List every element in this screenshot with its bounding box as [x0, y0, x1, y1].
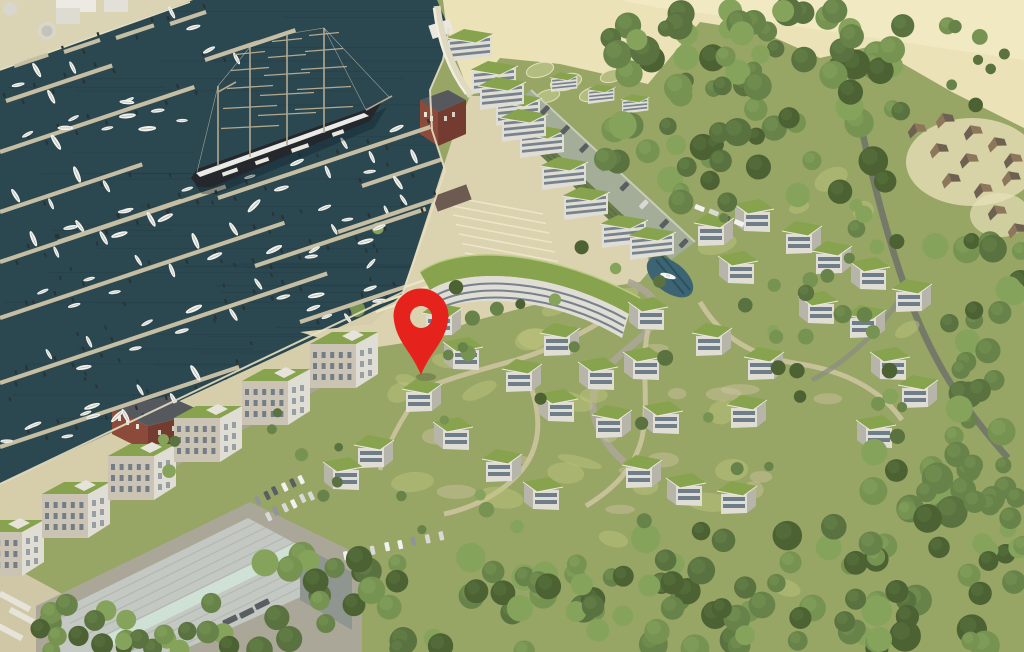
apartment-block: [174, 404, 242, 462]
apartment-block: [42, 480, 110, 538]
storage-tank: [3, 2, 17, 16]
warehouse-building: [104, 0, 128, 12]
apartment-block: [310, 330, 378, 388]
boat: [57, 126, 73, 130]
warehouse-building: [56, 8, 80, 24]
aerial-resort-map: [0, 0, 1024, 652]
